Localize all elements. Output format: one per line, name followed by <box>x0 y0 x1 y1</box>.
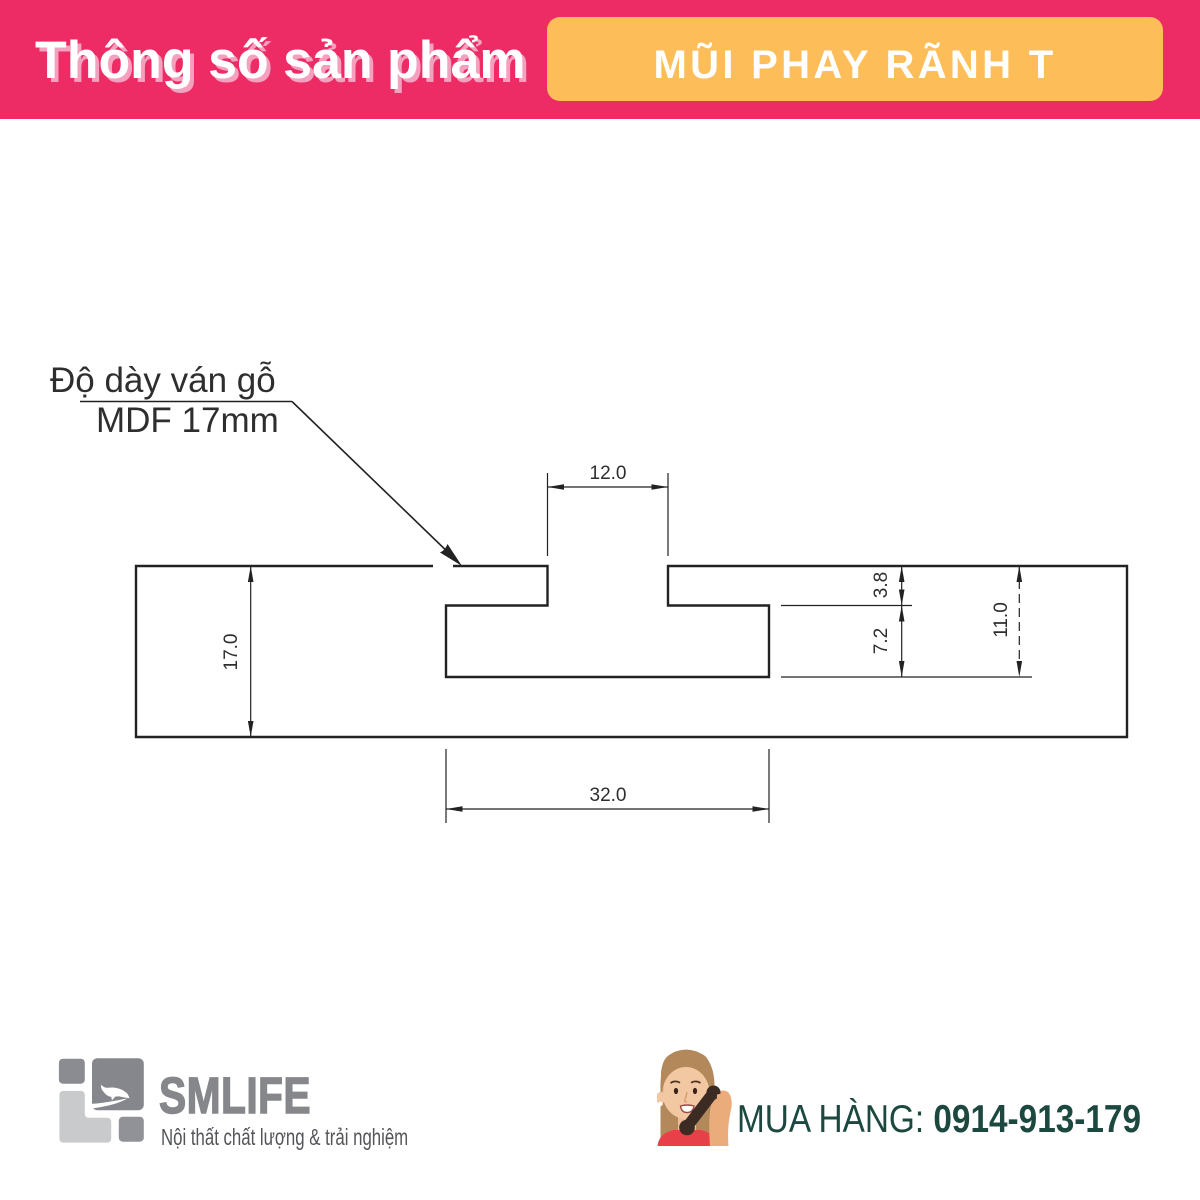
svg-text:MDF 17mm: MDF 17mm <box>96 401 279 440</box>
svg-text:12.0: 12.0 <box>590 463 627 484</box>
svg-text:7.2: 7.2 <box>871 628 892 654</box>
svg-text:3.8: 3.8 <box>871 572 892 598</box>
svg-text:Độ dày ván gỗ: Độ dày ván gỗ <box>50 361 276 400</box>
svg-text:32.0: 32.0 <box>590 785 627 806</box>
svg-text:11.0: 11.0 <box>991 602 1012 638</box>
svg-text:17.0: 17.0 <box>221 634 242 671</box>
